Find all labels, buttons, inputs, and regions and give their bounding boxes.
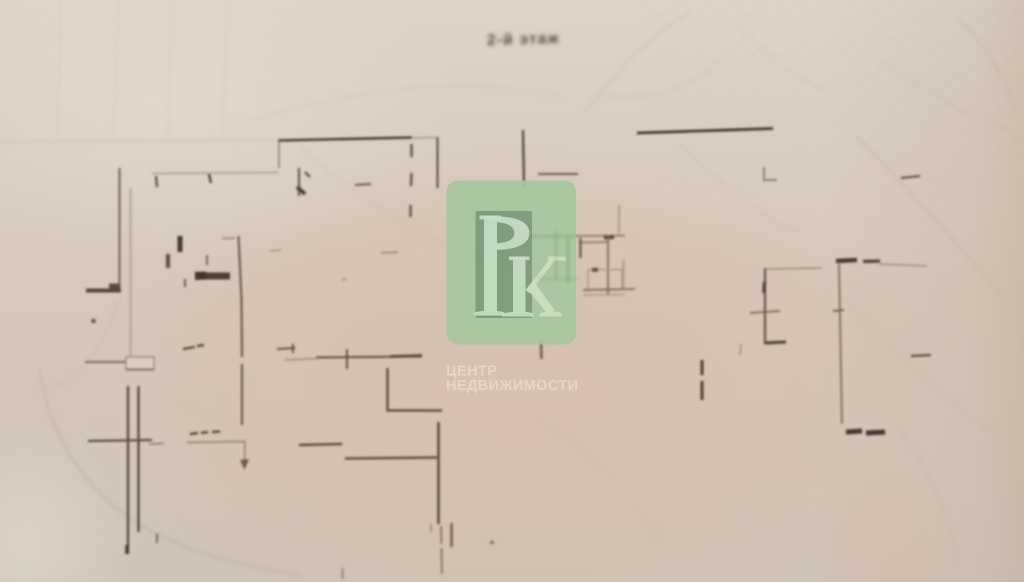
svg-text:2-й этаж: 2-й этаж	[487, 30, 560, 49]
svg-text:НЕДВИЖИМОСТИ: НЕДВИЖИМОСТИ	[446, 378, 578, 394]
